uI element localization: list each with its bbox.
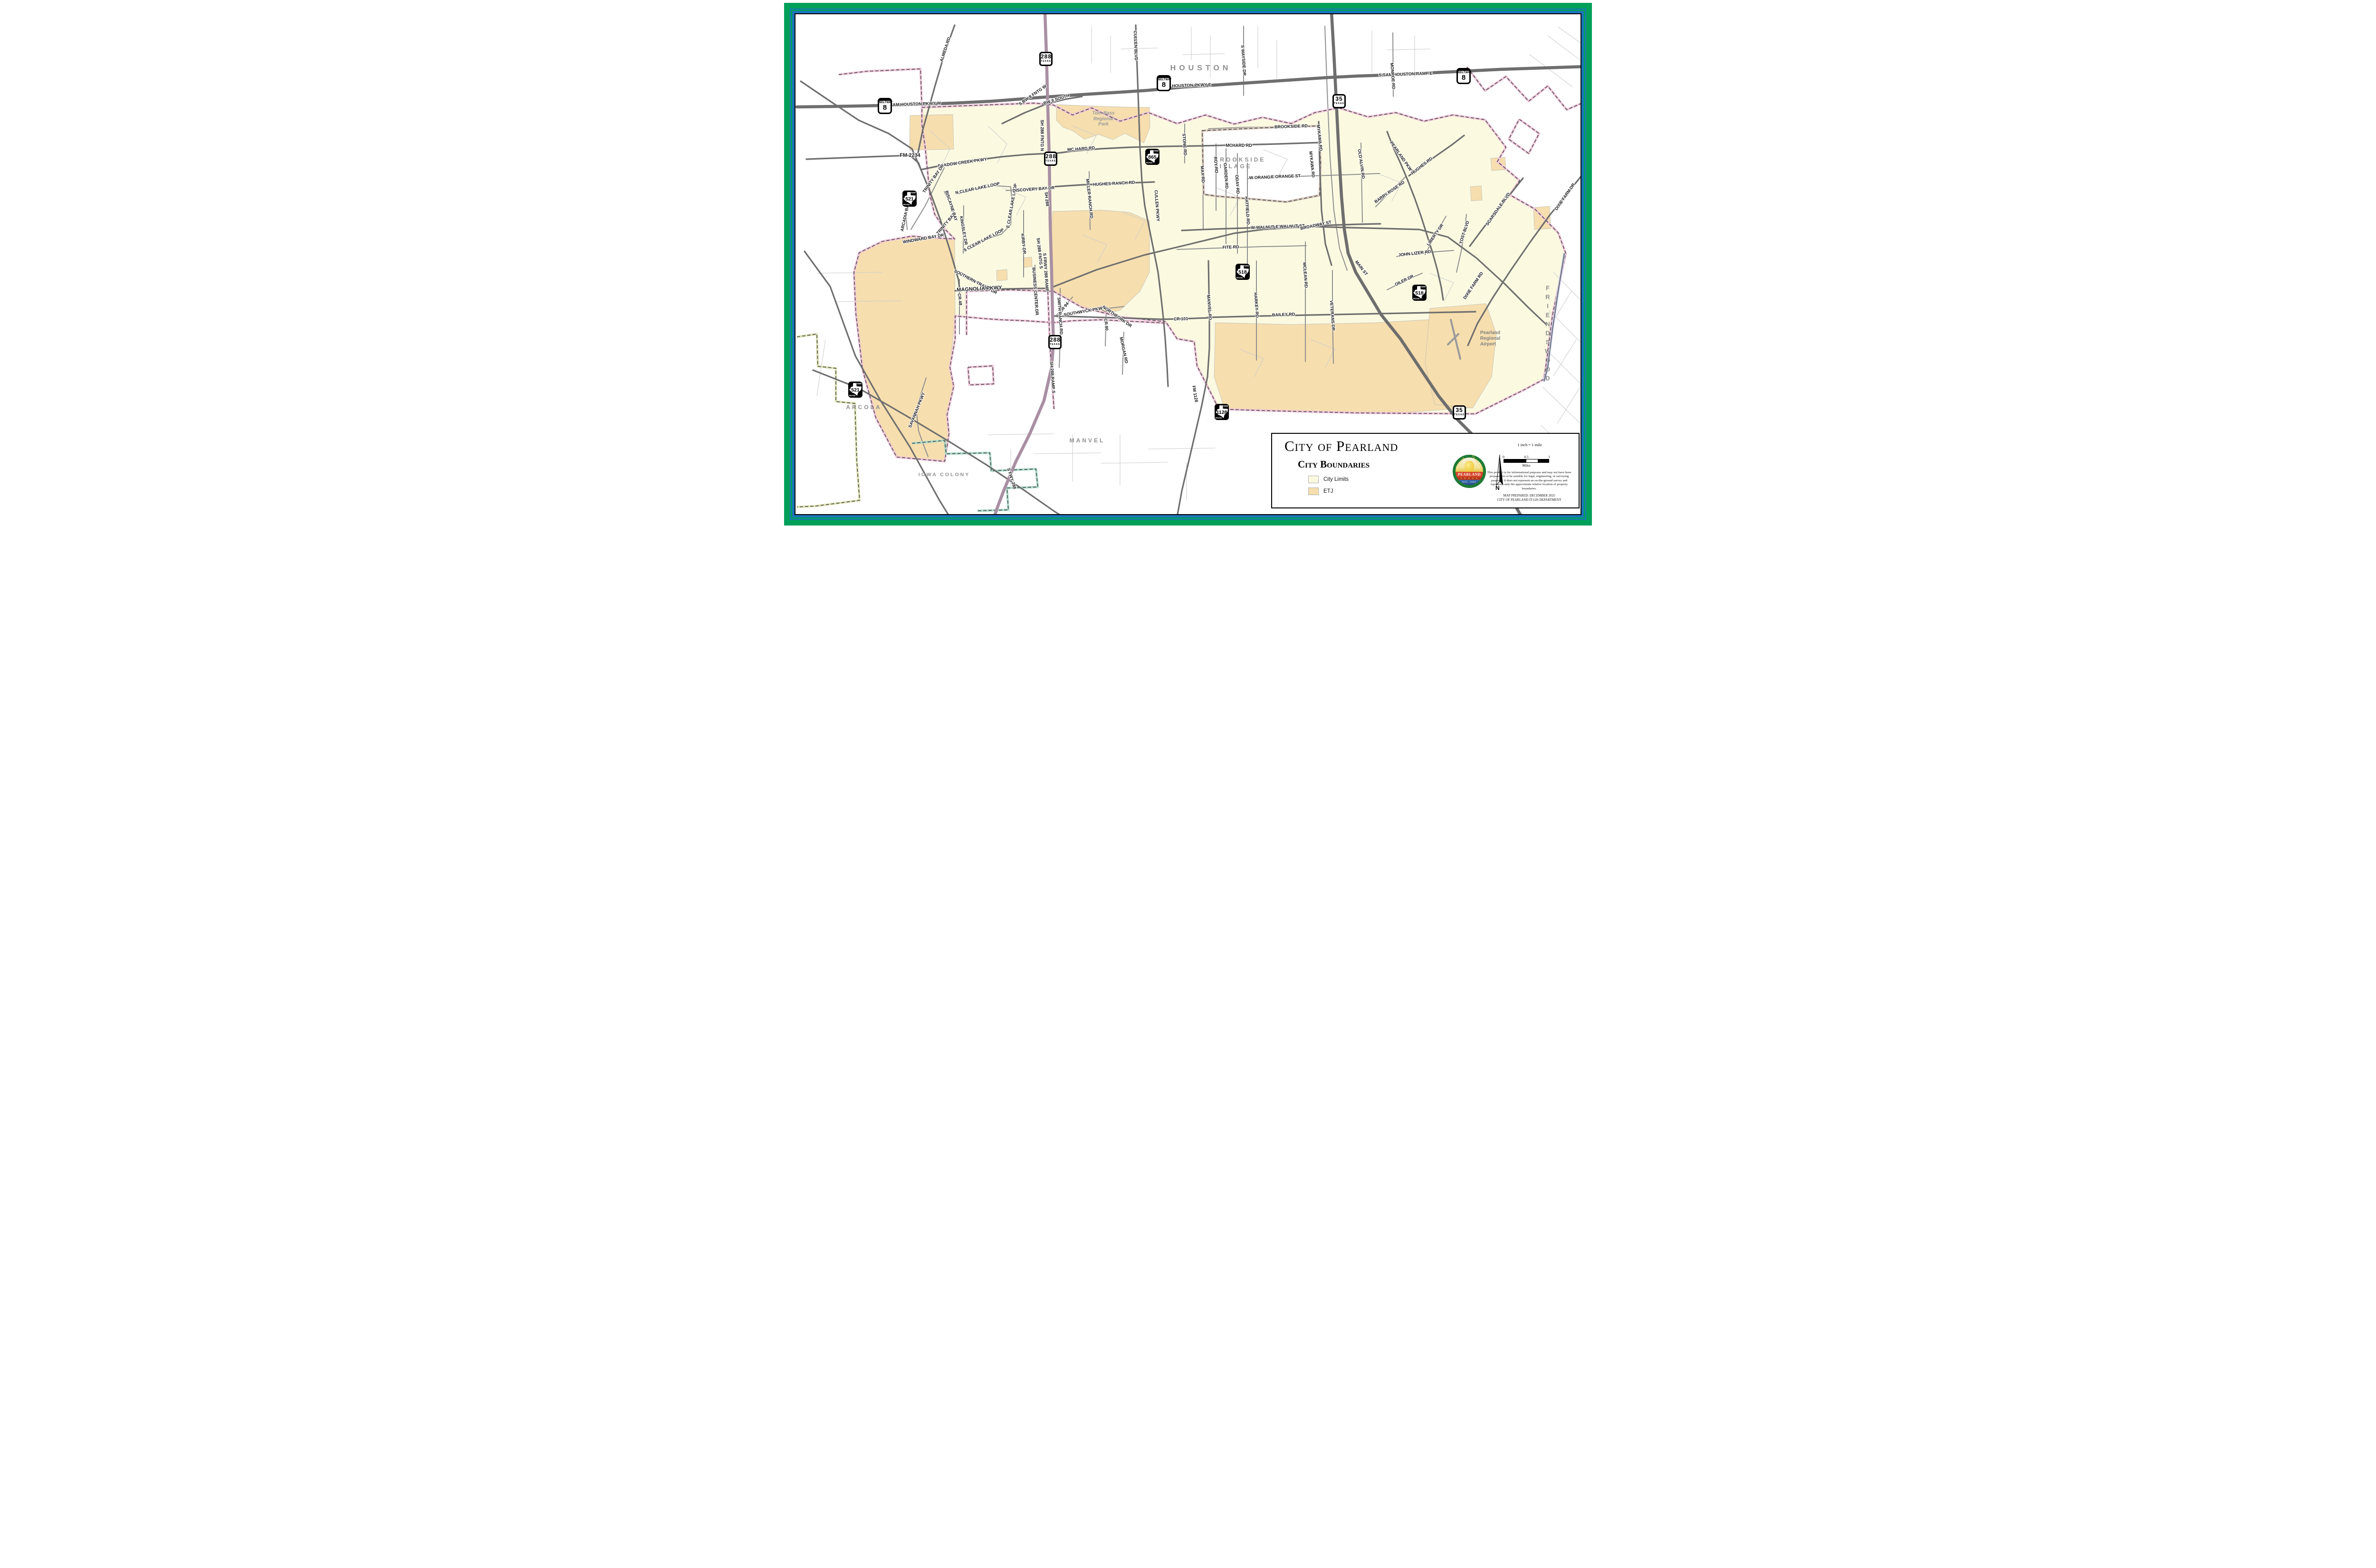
legend-swatch	[1308, 488, 1319, 495]
legend-item: City Limits	[1308, 476, 1349, 483]
road	[1553, 340, 1576, 376]
legend-label: ETJ	[1323, 488, 1333, 494]
scale-bar-segments	[1504, 459, 1549, 463]
scale-segment	[1504, 459, 1526, 462]
boundary-halo	[797, 334, 860, 507]
credits: MAP PREPARED: DECEMBER 2025 CITY OF PEAR…	[1485, 494, 1574, 502]
scale-tick: 0.5	[1524, 455, 1528, 459]
logo-name: PEARLAND	[1456, 472, 1483, 477]
scale-segment	[1538, 459, 1549, 462]
road	[1548, 36, 1581, 64]
pear-icon	[1465, 461, 1474, 472]
map-canvas: HOUSTONBROOKSIDEVILLAGEFRIENDSWOODMANVEL…	[795, 14, 1581, 514]
boundary-halo	[839, 69, 922, 107]
pearland-logo: PEARLAND T E X A S EST. 1894 CITY OF PEA…	[1453, 455, 1486, 488]
non-city-area	[1202, 126, 1321, 202]
scale-tick: 0	[1503, 455, 1504, 459]
logo-est: EST. 1894	[1456, 481, 1483, 484]
road	[963, 206, 964, 253]
boundary-halo	[1467, 67, 1581, 110]
road	[1035, 453, 1101, 454]
legend-label: City Limits	[1323, 477, 1349, 482]
road	[1121, 48, 1158, 49]
credit-line1: MAP PREPARED: DECEMBER 2025	[1485, 494, 1574, 498]
road	[1557, 387, 1580, 423]
map-title: City of Pearland	[1284, 438, 1398, 455]
road	[1546, 349, 1581, 386]
etj-area	[854, 236, 955, 461]
road	[797, 67, 1581, 107]
road	[1543, 387, 1580, 423]
scale-bar: 0 0.5 1 Miles	[1504, 455, 1549, 468]
etj-area	[996, 269, 1007, 281]
title-block: City of Pearland City Boundaries City Li…	[1271, 433, 1580, 508]
legend-swatch	[1308, 476, 1319, 483]
boundary-line	[1509, 119, 1539, 153]
legend-item: ETJ	[1308, 488, 1349, 495]
road	[1393, 33, 1393, 96]
page: HOUSTONBROOKSIDEVILLAGEFRIENDSWOODMANVEL…	[0, 0, 2376, 528]
road	[1558, 27, 1581, 50]
logo-state: T E X A S	[1456, 477, 1483, 480]
legend: City LimitsETJ	[1308, 476, 1349, 499]
road	[1183, 54, 1225, 55]
map-document: HOUSTONBROOKSIDEVILLAGEFRIENDSWOODMANVEL…	[784, 3, 1592, 526]
road	[806, 155, 921, 170]
road	[1149, 448, 1215, 449]
boundary-halo	[1509, 119, 1539, 153]
boundary-line	[839, 69, 922, 107]
road	[988, 434, 1054, 435]
disclaimer-text: This product is for informational purpos…	[1485, 471, 1574, 491]
etj-area	[1470, 186, 1482, 201]
scale-tick: 1	[1548, 455, 1550, 459]
boundary-line	[797, 334, 860, 507]
road	[1530, 55, 1572, 87]
scale-ticks: 0 0.5 1	[1504, 455, 1549, 459]
scale-unit: Miles	[1504, 463, 1549, 468]
road	[1387, 49, 1430, 50]
etj-area	[1023, 257, 1032, 268]
scale-segment	[1526, 459, 1538, 462]
road	[906, 196, 907, 229]
road	[1101, 462, 1168, 463]
map-subtitle: City Boundaries	[1298, 459, 1370, 470]
scale-caption: 1 inch = 1 mile	[1492, 442, 1568, 447]
credit-line2: CITY OF PEARLAND IT-GIS DEPARTMENT	[1485, 498, 1574, 502]
